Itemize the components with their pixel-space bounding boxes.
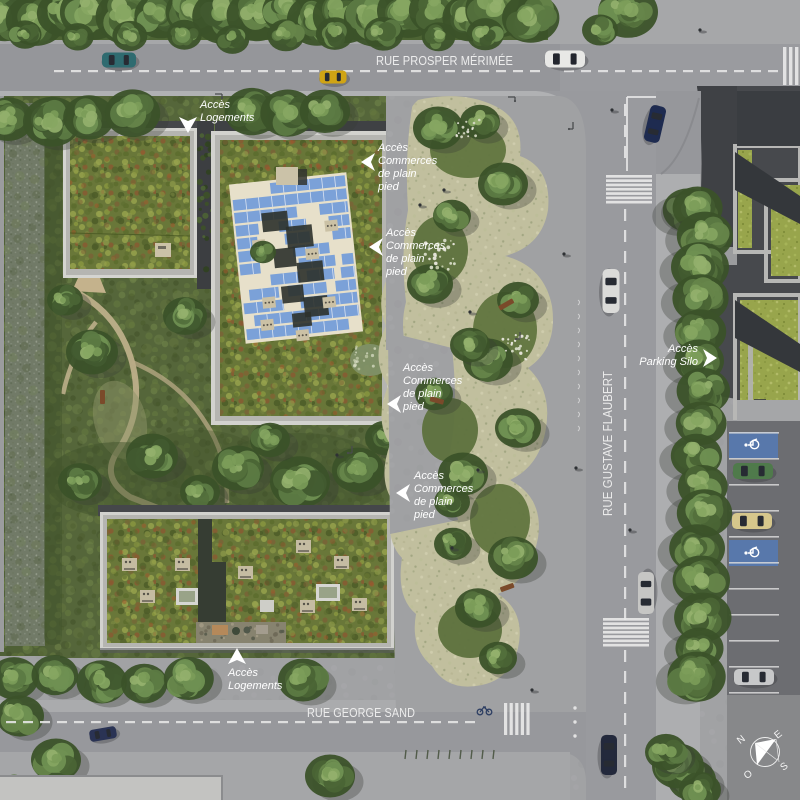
svg-text:pied: pied xyxy=(377,181,400,193)
svg-text:pied: pied xyxy=(402,401,425,413)
svg-text:Commerces: Commerces xyxy=(378,155,438,167)
svg-text:de plain: de plain xyxy=(403,388,442,400)
svg-text:de plain: de plain xyxy=(378,168,417,180)
svg-text:Logements: Logements xyxy=(228,680,283,692)
svg-text:Accès: Accès xyxy=(227,667,258,679)
svg-text:Accès: Accès xyxy=(413,470,444,482)
svg-text:Accès: Accès xyxy=(385,227,416,239)
svg-text:RUE PROSPER MÉRIMÉE: RUE PROSPER MÉRIMÉE xyxy=(376,53,513,68)
svg-text:de plain: de plain xyxy=(386,253,425,265)
svg-text:de plain: de plain xyxy=(414,496,453,508)
svg-text:pied: pied xyxy=(385,266,408,278)
svg-text:Commerces: Commerces xyxy=(403,375,463,387)
svg-text:Accès: Accès xyxy=(199,99,230,111)
svg-text:RUE GEORGE SAND: RUE GEORGE SAND xyxy=(307,705,415,720)
svg-text:Commerces: Commerces xyxy=(386,240,446,252)
svg-text:Accès: Accès xyxy=(402,362,433,374)
svg-text:Accès: Accès xyxy=(667,343,698,355)
svg-text:Accès: Accès xyxy=(377,142,408,154)
svg-text:RUE GUSTAVE FLAUBERT: RUE GUSTAVE FLAUBERT xyxy=(600,371,615,516)
svg-text:Commerces: Commerces xyxy=(414,483,474,495)
svg-text:Parking Silo: Parking Silo xyxy=(639,356,698,368)
svg-text:Logements: Logements xyxy=(200,112,255,124)
svg-text:pied: pied xyxy=(413,509,436,521)
